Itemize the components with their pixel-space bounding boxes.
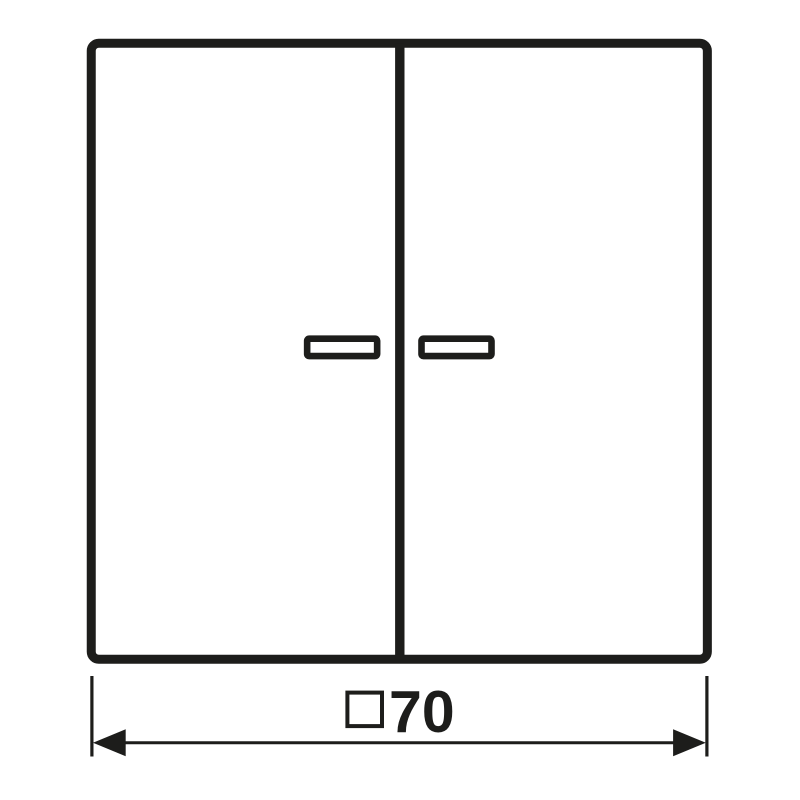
svg-text:70: 70 (389, 679, 455, 745)
